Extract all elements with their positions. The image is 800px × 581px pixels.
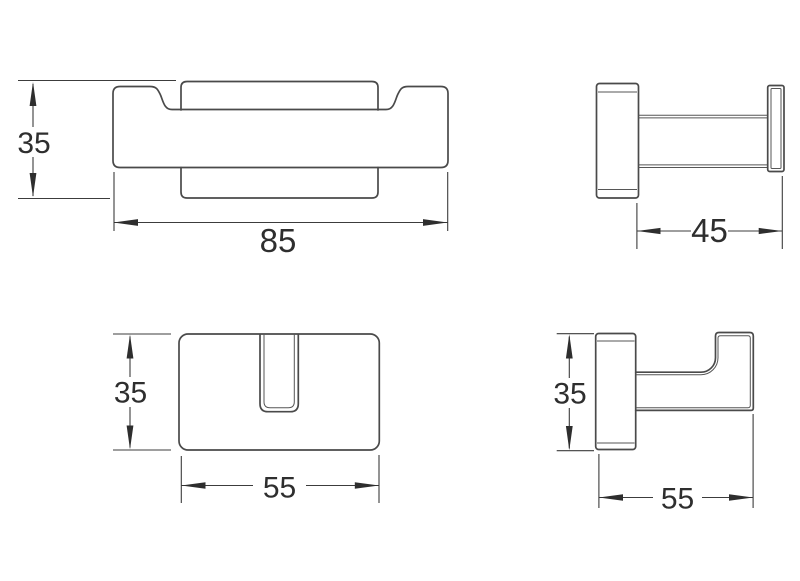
side-wall-plate-inner xyxy=(771,89,781,169)
top-plate-outline xyxy=(179,334,379,450)
arrow-up-icon xyxy=(566,334,573,358)
dimension-label-side-projection: 45 xyxy=(691,212,728,249)
front-lower-bar-outline xyxy=(181,168,378,199)
side-view-single-hook: 35 55 xyxy=(553,333,753,516)
side-wall-plate-outline xyxy=(768,86,784,172)
hook-wall-plate-outline xyxy=(596,334,636,450)
arrow-right-icon xyxy=(729,494,753,500)
side-view-double-hook: 45 xyxy=(597,84,785,250)
arrow-left-icon xyxy=(181,482,205,488)
arrow-left-icon xyxy=(114,219,139,226)
dimension-label-top-width: 55 xyxy=(263,472,296,505)
hook-drawing-svg: 35 85 xyxy=(0,0,800,581)
dimension-label-top-depth: 35 xyxy=(114,377,147,410)
top-arm-slot-inner xyxy=(264,335,294,408)
side-arm-lines xyxy=(639,115,768,167)
arrow-up-icon xyxy=(30,82,37,106)
arrow-right-icon xyxy=(423,219,448,226)
side-bar-outline xyxy=(597,84,639,199)
technical-drawing-canvas: 35 85 xyxy=(0,0,800,581)
hook-projection-dimension: 55 xyxy=(599,414,753,516)
dimension-label-front-width: 85 xyxy=(260,222,297,259)
arrow-left-icon xyxy=(637,228,661,234)
top-depth-dimension: 35 xyxy=(113,334,171,450)
hook-height-dimension: 35 xyxy=(553,334,594,451)
front-height-dimension: 35 xyxy=(17,81,176,199)
side-projection-dimension: 45 xyxy=(637,176,782,249)
arrow-right-icon xyxy=(759,228,783,234)
arrow-right-icon xyxy=(355,482,379,488)
hook-profile-outer xyxy=(636,333,754,411)
front-width-dimension: 85 xyxy=(114,172,448,259)
top-width-dimension: 55 xyxy=(181,455,379,505)
top-view-hook: 35 55 xyxy=(113,334,379,505)
top-arm-slot-outer xyxy=(260,335,298,412)
arrow-down-icon xyxy=(127,426,134,450)
front-view-double-hook: 35 85 xyxy=(17,81,448,260)
front-upper-bar-outline xyxy=(181,82,378,111)
arrow-down-icon xyxy=(30,173,37,197)
arrow-down-icon xyxy=(566,426,573,450)
dimension-label-front-height: 35 xyxy=(17,127,50,160)
dimension-label-hook-projection: 55 xyxy=(661,483,694,516)
arrow-left-icon xyxy=(599,494,623,500)
dimension-label-hook-height: 35 xyxy=(553,378,586,411)
arrow-up-icon xyxy=(127,335,134,359)
front-body-outline xyxy=(113,87,448,168)
